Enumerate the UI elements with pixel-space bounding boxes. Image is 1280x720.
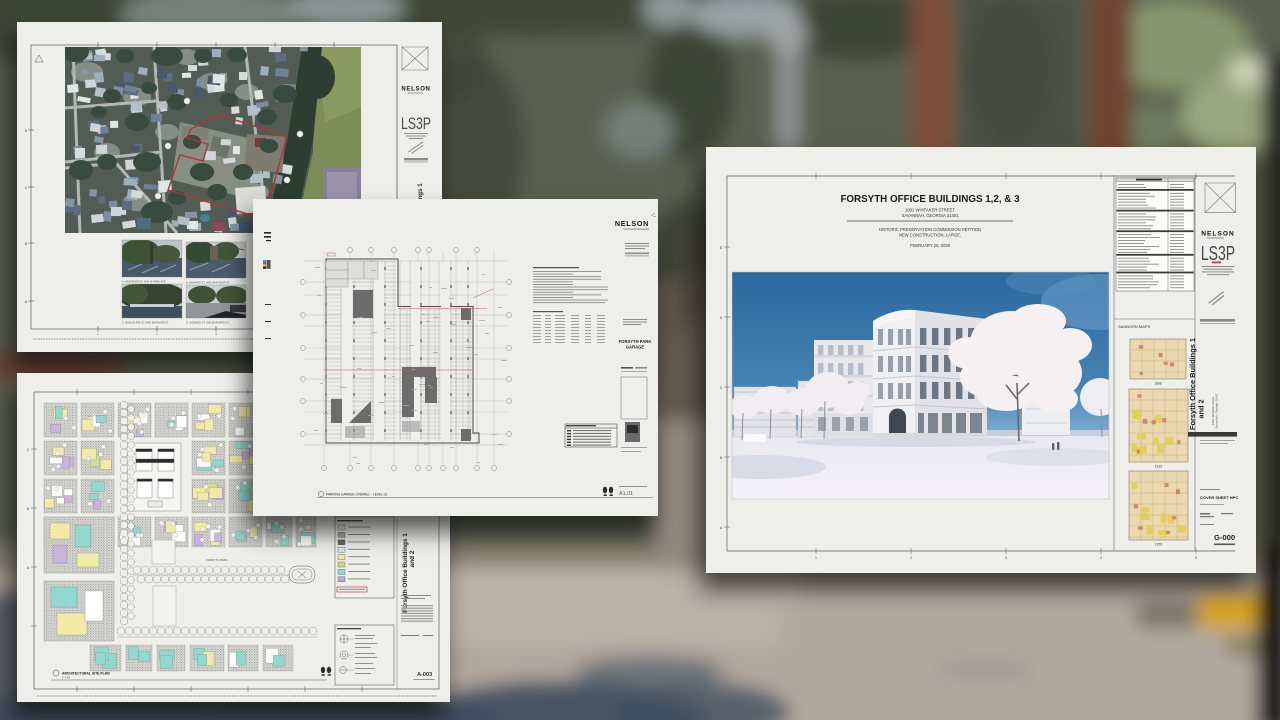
svg-text:NELSON: NELSON [401,87,430,93]
svg-text:C. W BLVD AVE ST. AND BARNARD: C. W BLVD AVE ST. AND BARNARD ST [122,321,169,325]
svg-text:FORSYTH PARK: FORSYTH PARK [206,558,228,562]
svg-text:FEBRUARY 26, 2025: FEBRUARY 26, 2025 [910,243,951,248]
svg-text:1955: 1955 [1155,543,1163,547]
svg-text:FORSYTH PARK: FORSYTH PARK [619,339,652,344]
svg-text:D. HOWARD ST. AND BARNARD ST.: D. HOWARD ST. AND BARNARD ST. [186,321,230,325]
svg-text:5: 5 [1195,556,1197,560]
svg-text:C: C [720,386,723,390]
svg-text:1001 WHITAKER STREET: 1001 WHITAKER STREET [905,208,955,213]
svg-text:PARKING GARAGE OVERALL - LEVEL: PARKING GARAGE OVERALL - LEVEL 01 [326,493,387,497]
svg-text:NEW CONSTRUCTION, LARGE,: NEW CONSTRUCTION, LARGE, [899,233,961,238]
svg-text:E: E [720,246,723,250]
svg-text:NELSON: NELSON [615,219,649,228]
svg-text:1: 1 [97,332,99,336]
svg-text:A: A [720,526,723,530]
svg-text:LS3P: LS3P [1201,241,1235,264]
svg-text:A: A [27,566,30,570]
svg-text:HISTORIC PRESERVATION COMMISSI: HISTORIC PRESERVATION COMMISSION PETITIO… [879,227,981,232]
svg-text:GARAGE: GARAGE [626,345,645,350]
svg-text:1888: 1888 [1154,382,1162,386]
svg-text:COVER SHEET HPC: COVER SHEET HPC [1200,495,1238,500]
svg-text:C: C [25,186,28,190]
svg-text:D: D [720,316,723,320]
svg-text:G-000: G-000 [1214,533,1235,542]
svg-text:SAVANNAH, GEORGIA 31401: SAVANNAH, GEORGIA 31401 [902,213,960,218]
svg-text:SANBORN MAPS: SANBORN MAPS [1118,324,1151,329]
svg-text:3: 3 [215,332,217,336]
svg-text:LS3P: LS3P [401,115,431,133]
svg-text:B. HOWARD ST. AND WHITAKER ST.: B. HOWARD ST. AND WHITAKER ST. [186,281,230,285]
svg-text:Savannah, Georgia 31401: Savannah, Georgia 31401 [1215,393,1219,428]
svg-text:A: A [25,300,28,304]
svg-text:ARCHITECTURAL SITE PLAN: ARCHITECTURAL SITE PLAN [62,672,110,676]
svg-text:1: 1 [815,556,817,560]
svg-text:4: 4 [1100,556,1102,560]
svg-text:D: D [25,129,28,133]
svg-text:A-003: A-003 [417,672,432,678]
svg-text:2: 2 [156,332,158,336]
svg-text:A. WHITAKER ST. AND W PARK AVE: A. WHITAKER ST. AND W PARK AVE [122,280,166,284]
svg-text:3: 3 [1005,556,1007,560]
svg-text:B: B [27,507,30,511]
svg-text:C: C [27,448,30,452]
svg-text:FORSYTH OFFICE BUILDINGS 1,2,: FORSYTH OFFICE BUILDINGS 1,2, & 3 [840,194,1020,205]
svg-text:and 2: and 2 [409,550,416,567]
svg-text:1916: 1916 [1155,465,1163,469]
svg-text:1″ = 60′: 1″ = 60′ [62,677,71,680]
svg-text:B: B [720,456,723,460]
svg-text:A1.01: A1.01 [619,491,633,497]
svg-text:and 2: and 2 [1197,399,1206,418]
svg-text:2: 2 [910,556,912,560]
svg-text:B: B [25,242,28,246]
svg-text:NELSON: NELSON [1201,231,1234,238]
svg-text:Forsyth Office Buildings 1: Forsyth Office Buildings 1 [402,533,409,613]
